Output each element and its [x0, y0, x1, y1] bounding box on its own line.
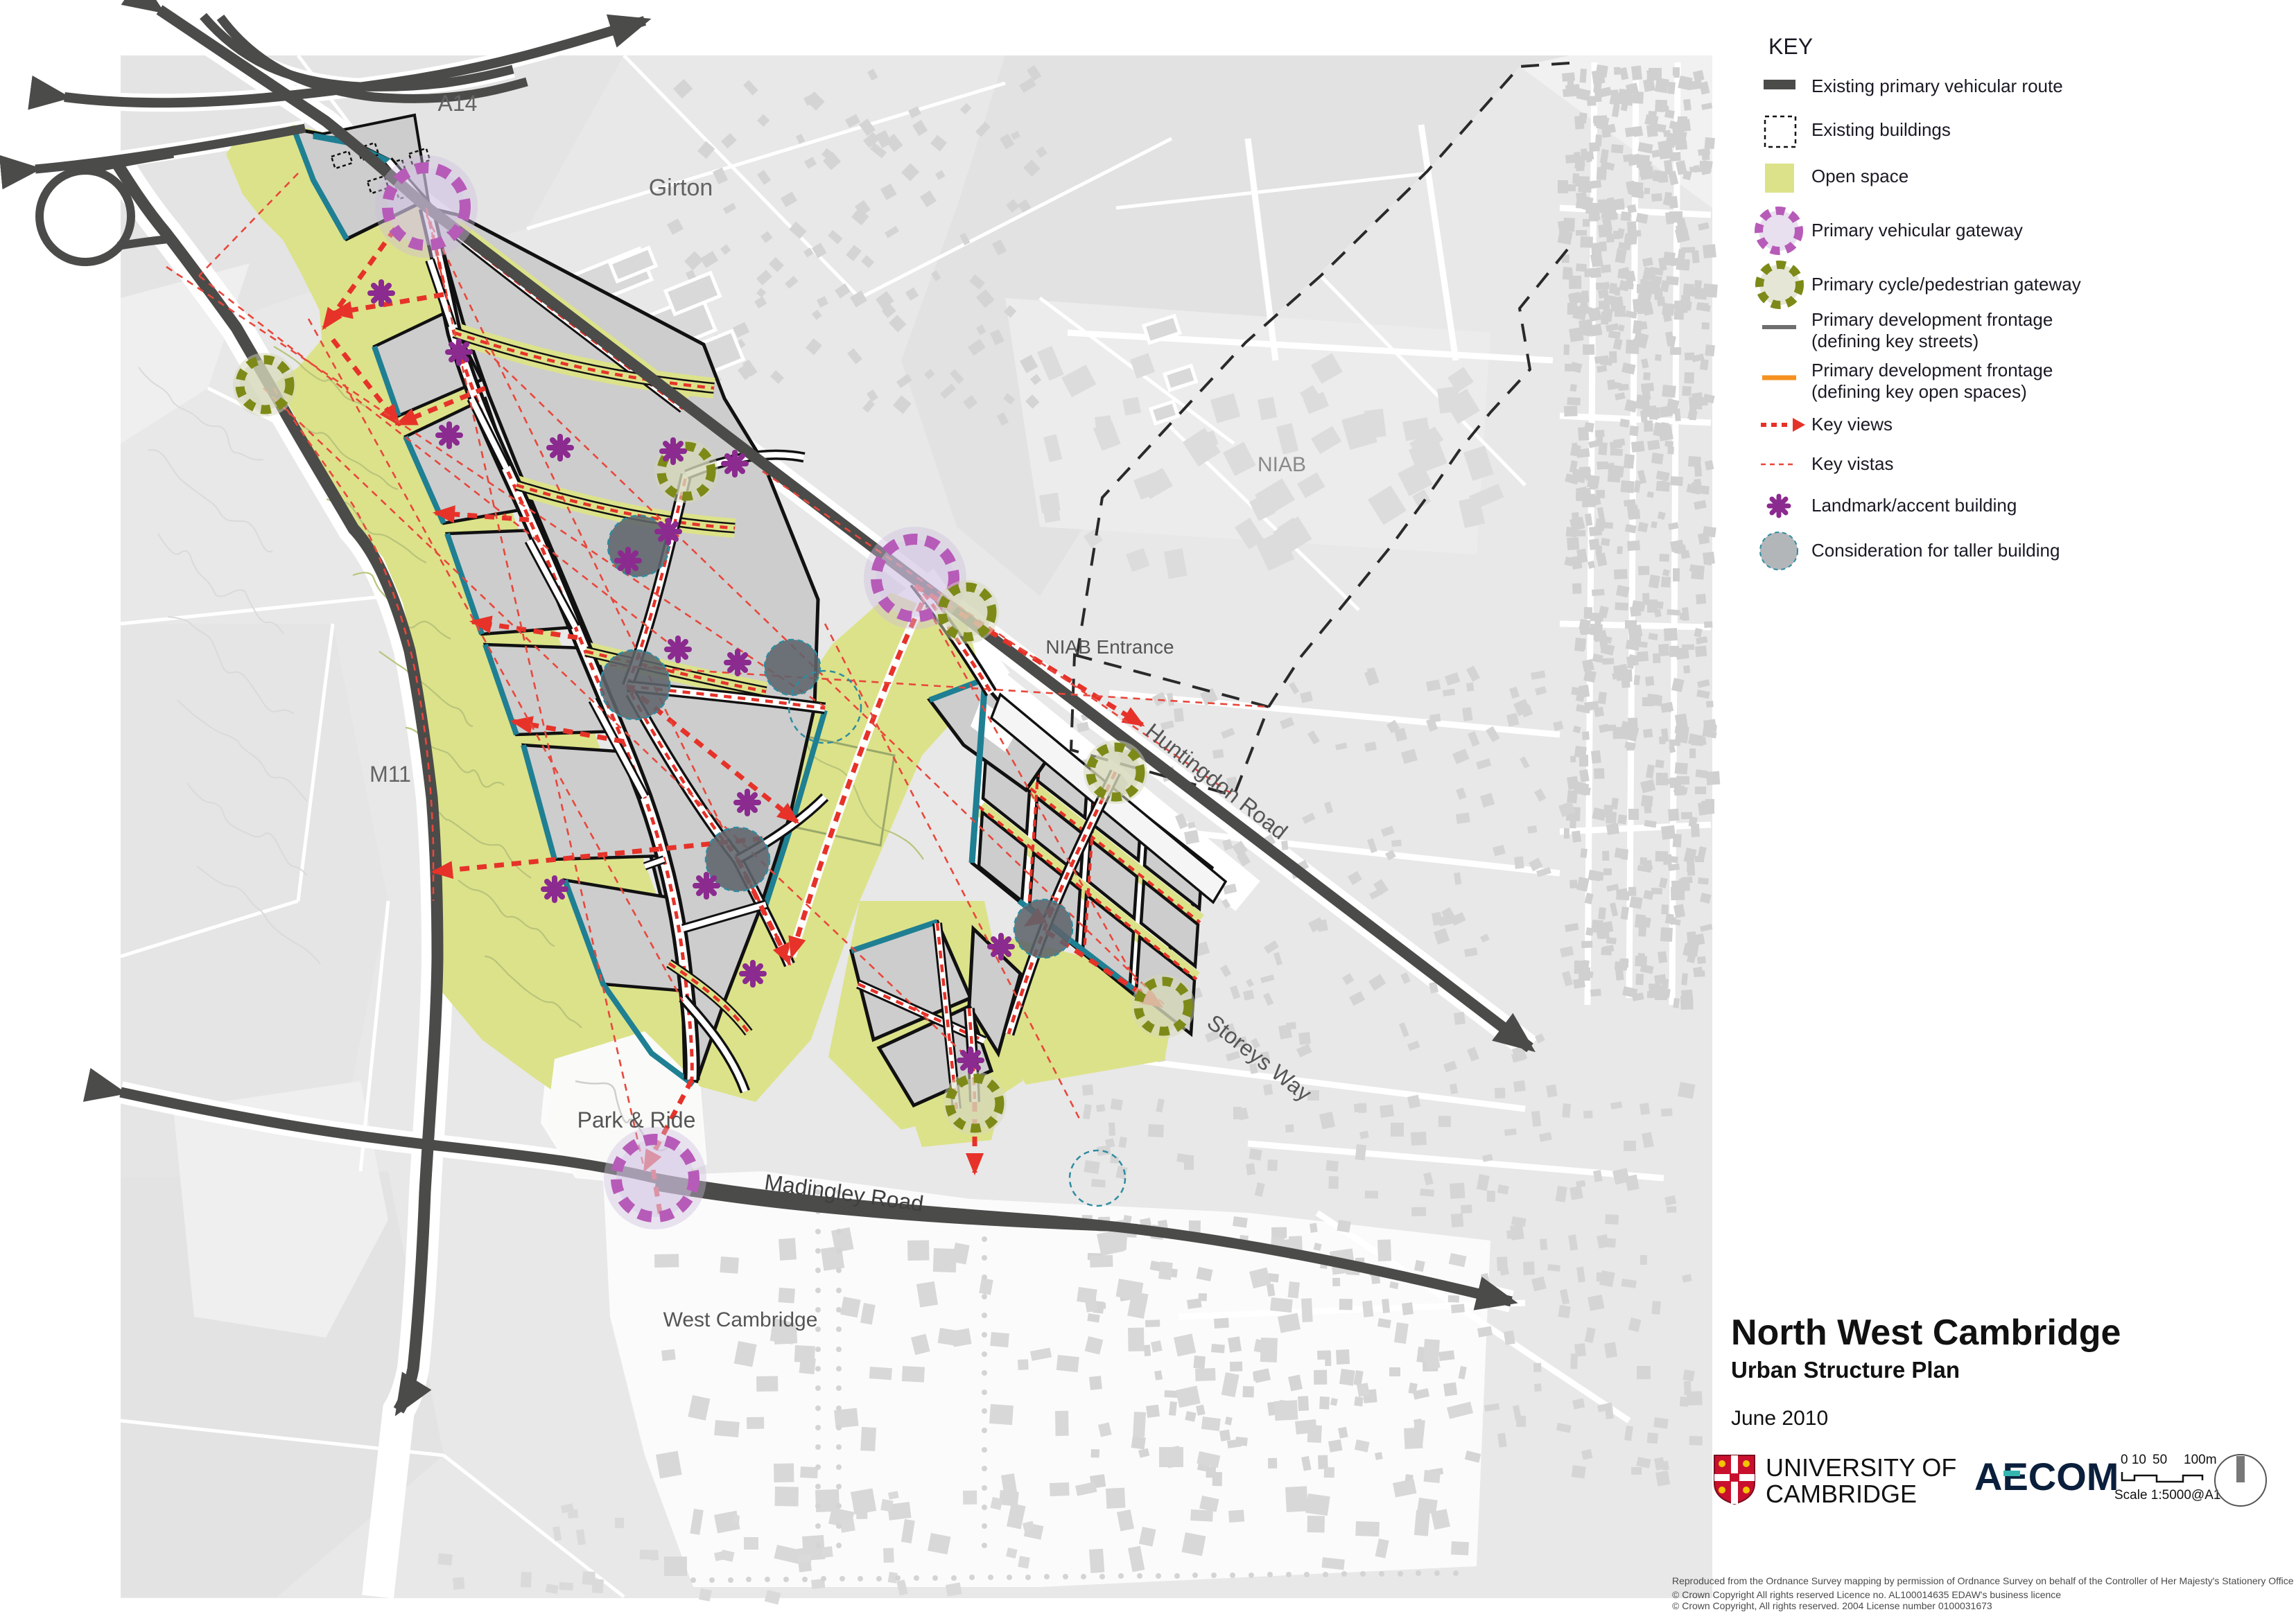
svg-text:Reproduced from the Ordnance S: Reproduced from the Ordnance Survey mapp… [1672, 1575, 2294, 1586]
svg-text:AECOM: AECOM [1974, 1455, 2119, 1498]
svg-text:KEY: KEY [1768, 34, 1813, 59]
svg-text:© Crown Copyright, All rights: © Crown Copyright, All rights reserved. … [1672, 1600, 1992, 1611]
svg-text:NIAB: NIAB [1258, 453, 1306, 476]
svg-text:A14: A14 [438, 91, 478, 116]
svg-text:© Crown Copyright All rights r: © Crown Copyright All rights reserved Li… [1672, 1589, 2061, 1600]
svg-text:Key vistas: Key vistas [1811, 453, 1894, 474]
svg-text:Primary development frontage: Primary development frontage [1811, 360, 2053, 380]
svg-text:0 10: 0 10 [2121, 1453, 2146, 1467]
svg-text:Landmark/accent building: Landmark/accent building [1811, 495, 2017, 516]
svg-text:West Cambridge: West Cambridge [663, 1308, 818, 1331]
svg-text:Existing buildings: Existing buildings [1811, 119, 1951, 140]
svg-text:June 2010: June 2010 [1731, 1407, 1828, 1430]
svg-text:Open space: Open space [1811, 166, 1908, 186]
svg-text:CAMBRIDGE: CAMBRIDGE [1766, 1480, 1917, 1508]
svg-text:M11: M11 [369, 762, 411, 787]
svg-text:100m: 100m [2184, 1453, 2217, 1467]
svg-text:Primary cycle/pedestrian gatew: Primary cycle/pedestrian gateway [1811, 274, 2081, 295]
svg-text:Girton: Girton [649, 175, 713, 201]
svg-text:Scale 1:5000@A1: Scale 1:5000@A1 [2114, 1488, 2220, 1502]
svg-text:Urban Structure Plan: Urban Structure Plan [1731, 1357, 1960, 1383]
svg-text:Primary vehicular gateway: Primary vehicular gateway [1811, 220, 2023, 240]
svg-text:North West Cambridge: North West Cambridge [1731, 1313, 2121, 1353]
svg-text:(defining key streets): (defining key streets) [1811, 331, 1978, 351]
svg-text:Park & Ride: Park & Ride [577, 1107, 696, 1132]
svg-text:Consideration for taller build: Consideration for taller building [1811, 540, 2060, 561]
svg-text:Primary development frontage: Primary development frontage [1811, 309, 2053, 330]
svg-text:50: 50 [2152, 1453, 2167, 1467]
svg-text:Existing primary vehicular rou: Existing primary vehicular route [1811, 76, 2063, 96]
svg-text:Key views: Key views [1811, 414, 1893, 435]
svg-text:(defining key open spaces): (defining key open spaces) [1811, 381, 2027, 402]
svg-text:UNIVERSITY OF: UNIVERSITY OF [1766, 1453, 1956, 1482]
svg-text:NIAB Entrance: NIAB Entrance [1045, 636, 1174, 658]
